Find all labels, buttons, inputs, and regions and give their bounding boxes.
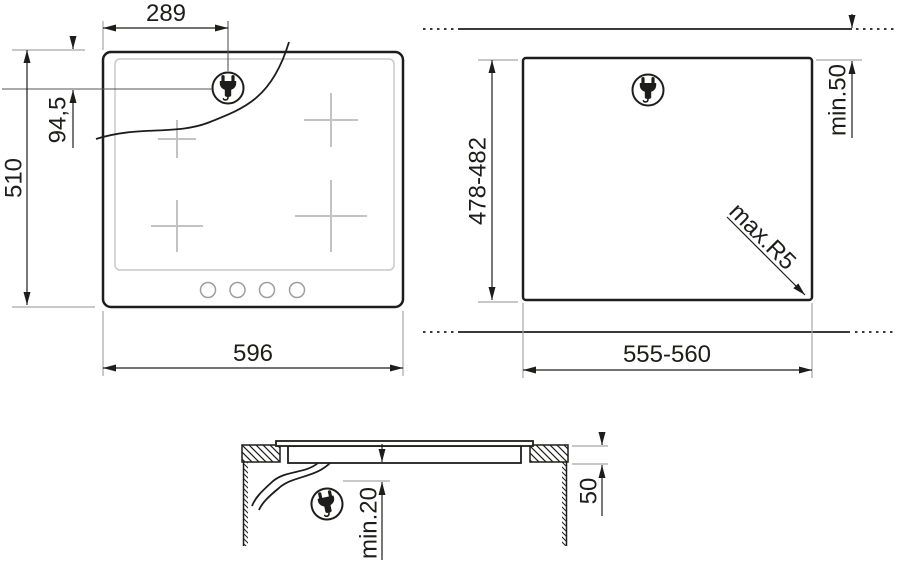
cutout-depth-label: 478-482 — [464, 137, 491, 225]
worktop-section-right — [530, 445, 568, 462]
power-plug-icon — [633, 75, 664, 106]
power-plug-icon — [309, 486, 346, 523]
hob-front-view: 289 94,5 510 596 — [0, 0, 403, 376]
hob-tub-section — [288, 446, 521, 463]
dim-rear-clearance: min.50 — [816, 14, 862, 138]
dim-overall-width: 596 — [103, 311, 403, 376]
overall-depth-label: 510 — [0, 158, 27, 198]
hob-glass-section — [276, 441, 533, 446]
dim-cutout-width: 555-560 — [523, 303, 812, 378]
rear-clearance-label: min.50 — [824, 64, 851, 136]
installation-diagram: 289 94,5 510 596 — [0, 0, 900, 562]
plug-offset-width-label: 289 — [146, 0, 186, 27]
plug-offset-depth-label: 94,5 — [44, 97, 71, 144]
dim-worktop-thickness: 50 — [572, 433, 608, 516]
cutout-outline — [523, 58, 812, 300]
cutout-width-label: 555-560 — [623, 341, 711, 368]
diagram-canvas: 289 94,5 510 596 — [0, 0, 900, 562]
power-plug-icon — [213, 73, 244, 104]
worktop-cutout-view: 478-482 min.50 max.R5 555-560 — [423, 14, 897, 378]
dim-cutout-depth: 478-482 — [464, 60, 518, 302]
worktop-section-left — [242, 445, 280, 462]
under-clearance-label: min.20 — [355, 487, 382, 559]
hob-body-outline — [103, 52, 403, 307]
worktop-thickness-label: 50 — [575, 478, 602, 505]
section-view: min.20 50 — [242, 433, 608, 560]
overall-width-label: 596 — [233, 340, 273, 367]
